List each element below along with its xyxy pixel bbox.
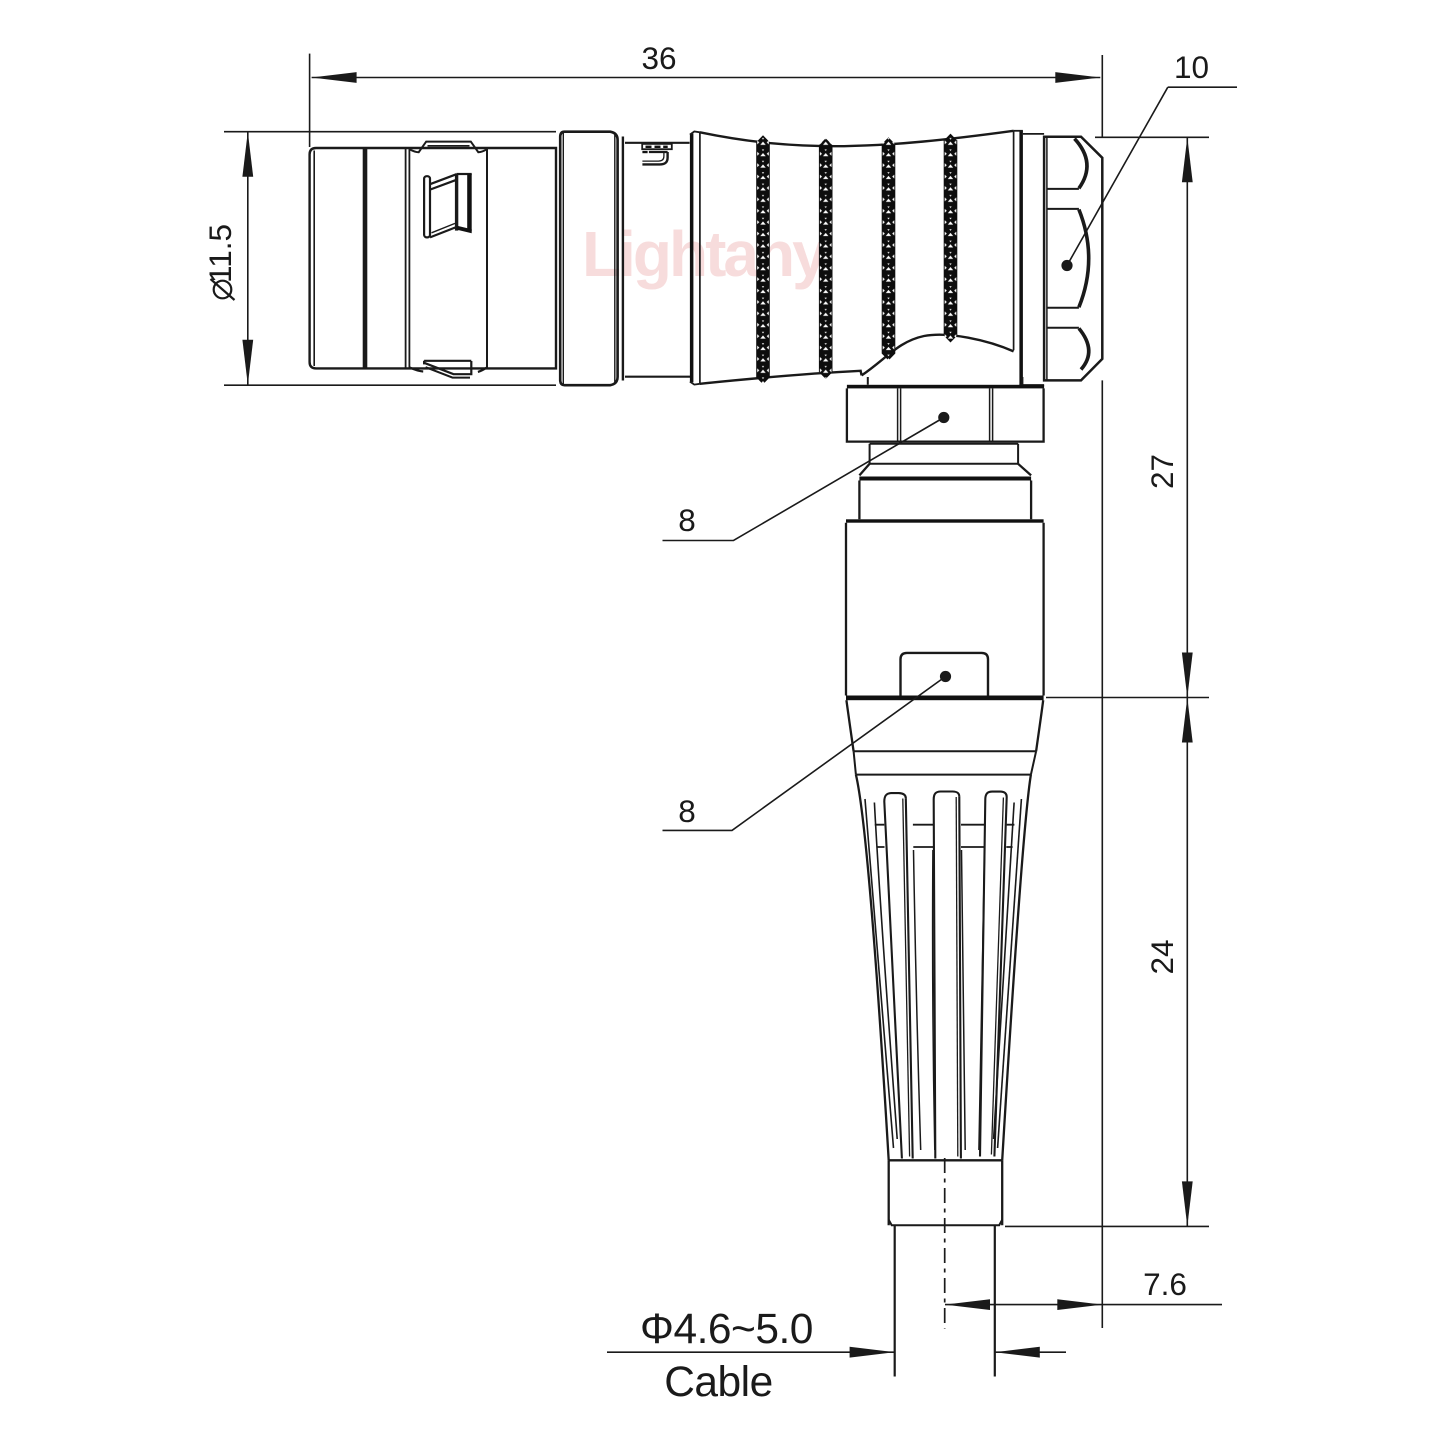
svg-text:Φ4.6~5.0: Φ4.6~5.0 <box>640 1306 813 1353</box>
svg-text:27: 27 <box>1144 454 1180 489</box>
svg-text:10: 10 <box>1174 49 1209 85</box>
svg-text:11.5: 11.5 <box>202 224 238 283</box>
svg-text:Cable: Cable <box>664 1359 773 1406</box>
svg-text:8: 8 <box>678 793 696 829</box>
svg-text:24: 24 <box>1144 939 1180 974</box>
svg-text:7.6: 7.6 <box>1143 1266 1187 1302</box>
svg-text:Lightany: Lightany <box>582 218 828 290</box>
svg-text:8: 8 <box>678 502 696 538</box>
svg-text:36: 36 <box>641 40 676 76</box>
